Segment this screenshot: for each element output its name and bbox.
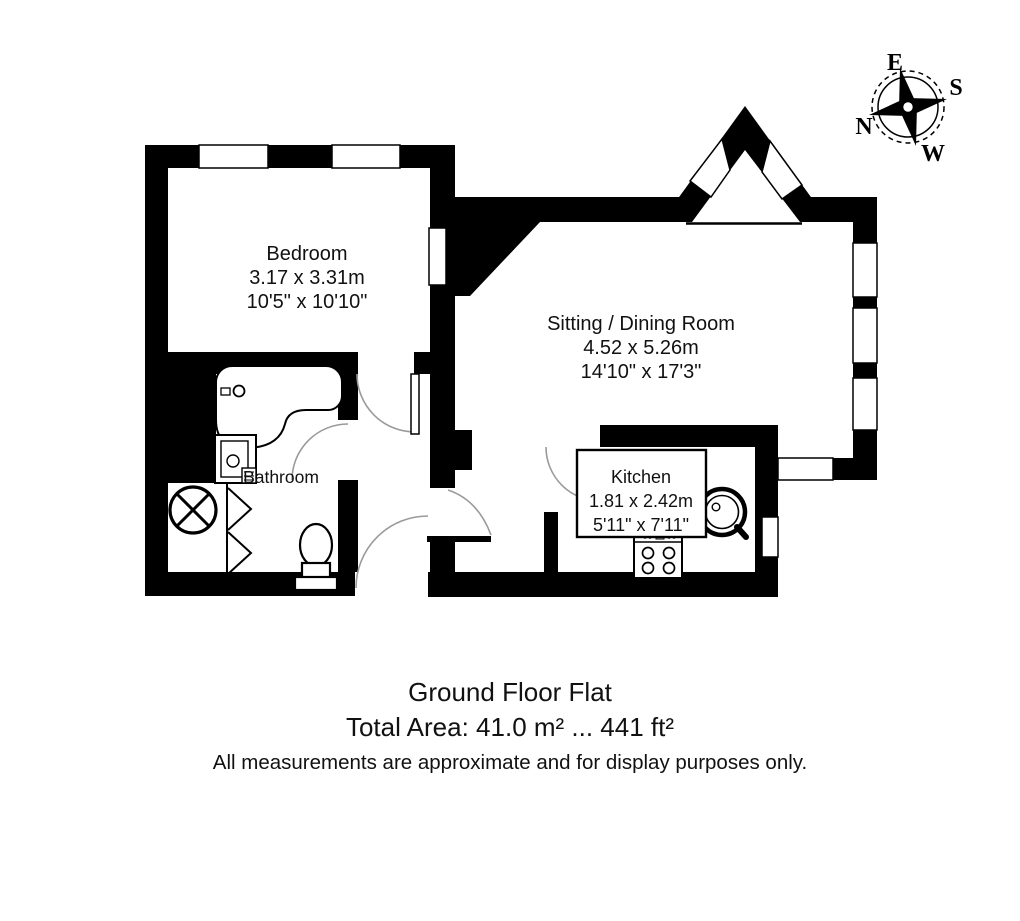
bedroom-top-wall — [145, 145, 455, 168]
kitchen-size-imperial: 5'11" x 7'11" — [593, 515, 689, 535]
bedroom-recess — [429, 228, 446, 285]
compass-hub — [902, 101, 914, 113]
kitchen-label: Kitchen — [611, 467, 671, 487]
kitchen-size-metric: 1.81 x 2.42m — [589, 491, 693, 511]
bathroom-label: Bathroom — [243, 467, 319, 487]
hall-wall-stub — [455, 430, 472, 470]
bedroom-window-2 — [332, 145, 400, 168]
bath-tap-handle — [221, 388, 230, 395]
bedroom-doorjamb — [414, 352, 430, 374]
bottom-wall — [428, 572, 778, 597]
bedroom-size-imperial: 10'5" x 10'10" — [247, 291, 368, 313]
sitting-window-1 — [853, 243, 877, 297]
bathroom-east-wall-lower — [338, 480, 358, 572]
compass-label-west: W — [921, 141, 945, 167]
sitting-top-wall-left — [430, 197, 692, 222]
floorplan-page: Bedroom 3.17 x 3.31m 10'5" x 10'10" Sitt… — [0, 0, 1020, 921]
circle-cross-symbol — [170, 487, 216, 533]
total-area: Total Area: 41.0 m² ... 441 ft² — [346, 712, 674, 742]
bedroom-size-metric: 3.17 x 3.31m — [249, 267, 365, 289]
sink-tap — [737, 527, 746, 537]
kitchen-top-wall — [600, 425, 778, 447]
compass-rose: E S N W — [855, 50, 962, 167]
sitting-label: Sitting / Dining Room — [547, 313, 735, 335]
sitting-door-leaf — [427, 536, 491, 542]
hall-east-wall-upper — [430, 145, 455, 488]
bedroom-window-1 — [199, 145, 268, 168]
compass-label-north: N — [855, 114, 873, 140]
bifold-door — [228, 488, 251, 574]
sitting-size-metric: 4.52 x 5.26m — [583, 337, 699, 359]
hall-east-wall-lower — [430, 537, 455, 574]
sitting-size-imperial: 14'10" x 17'3" — [581, 361, 702, 383]
compass-label-east: E — [887, 50, 903, 76]
kitchen-left-wall — [544, 512, 558, 574]
front-door-arc — [356, 516, 428, 588]
disclaimer: All measurements are approximate and for… — [213, 751, 807, 774]
bath-tap — [234, 386, 245, 397]
toilet — [295, 524, 337, 590]
sitting-window-2 — [853, 308, 877, 363]
compass-label-south: S — [949, 75, 962, 101]
sitting-door-arc — [448, 490, 491, 535]
bedroom-door-leaf — [411, 374, 419, 434]
footer: Ground Floor Flat Total Area: 41.0 m² ..… — [213, 677, 807, 774]
sitting-bottom-window — [778, 458, 833, 480]
floorplan-drawing: Bedroom 3.17 x 3.31m 10'5" x 10'10" Sitt… — [0, 0, 1020, 921]
sitting-window-3 — [853, 378, 877, 430]
bathroom-duct-block — [168, 358, 216, 483]
kitchen-window — [762, 517, 778, 557]
bedroom-label: Bedroom — [266, 243, 347, 265]
bedroom-door-arc — [357, 374, 415, 432]
sitting-corner-chamfer — [455, 222, 540, 296]
basin-bracket-2 — [208, 466, 216, 472]
basin-bracket-1 — [208, 446, 216, 452]
plan-title: Ground Floor Flat — [408, 677, 613, 707]
